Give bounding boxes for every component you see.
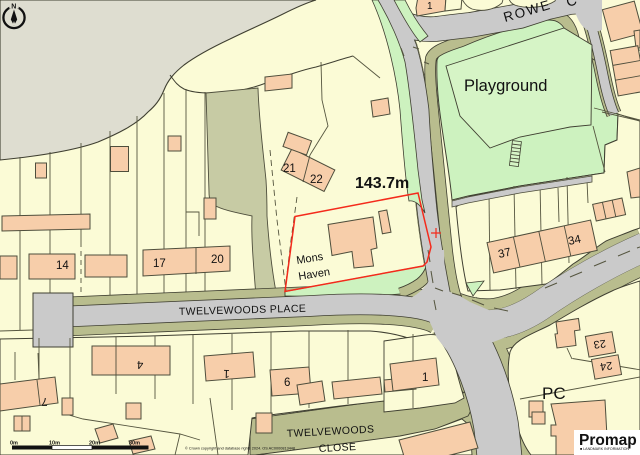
svg-text:1: 1 xyxy=(223,367,230,379)
svg-text:17: 17 xyxy=(153,258,166,270)
svg-text:N: N xyxy=(11,3,16,10)
svg-text:PC: PC xyxy=(542,384,566,403)
svg-text:1: 1 xyxy=(422,372,428,384)
svg-text:4: 4 xyxy=(136,358,143,370)
svg-text:20: 20 xyxy=(211,254,224,266)
svg-text:23: 23 xyxy=(593,337,607,351)
svg-text:143.7m: 143.7m xyxy=(355,175,409,192)
svg-text:22: 22 xyxy=(310,174,323,186)
svg-text:7: 7 xyxy=(41,395,48,407)
svg-text:14: 14 xyxy=(56,260,69,272)
svg-text:© Crown copyright and database: © Crown copyright and database rights 20… xyxy=(185,447,295,451)
svg-text:CLOSE: CLOSE xyxy=(319,441,357,455)
svg-text:1: 1 xyxy=(427,1,433,12)
svg-text:10m: 10m xyxy=(49,440,60,446)
svg-text:30m: 30m xyxy=(129,440,140,446)
svg-text:Playground: Playground xyxy=(464,77,547,95)
svg-text:20m: 20m xyxy=(89,440,100,446)
svg-text:■ LANDMARK INFORMATION: ■ LANDMARK INFORMATION xyxy=(580,447,629,451)
svg-text:6: 6 xyxy=(284,377,290,389)
svg-text:21: 21 xyxy=(283,163,296,175)
svg-text:0m: 0m xyxy=(10,440,18,446)
svg-text:24: 24 xyxy=(599,359,613,373)
